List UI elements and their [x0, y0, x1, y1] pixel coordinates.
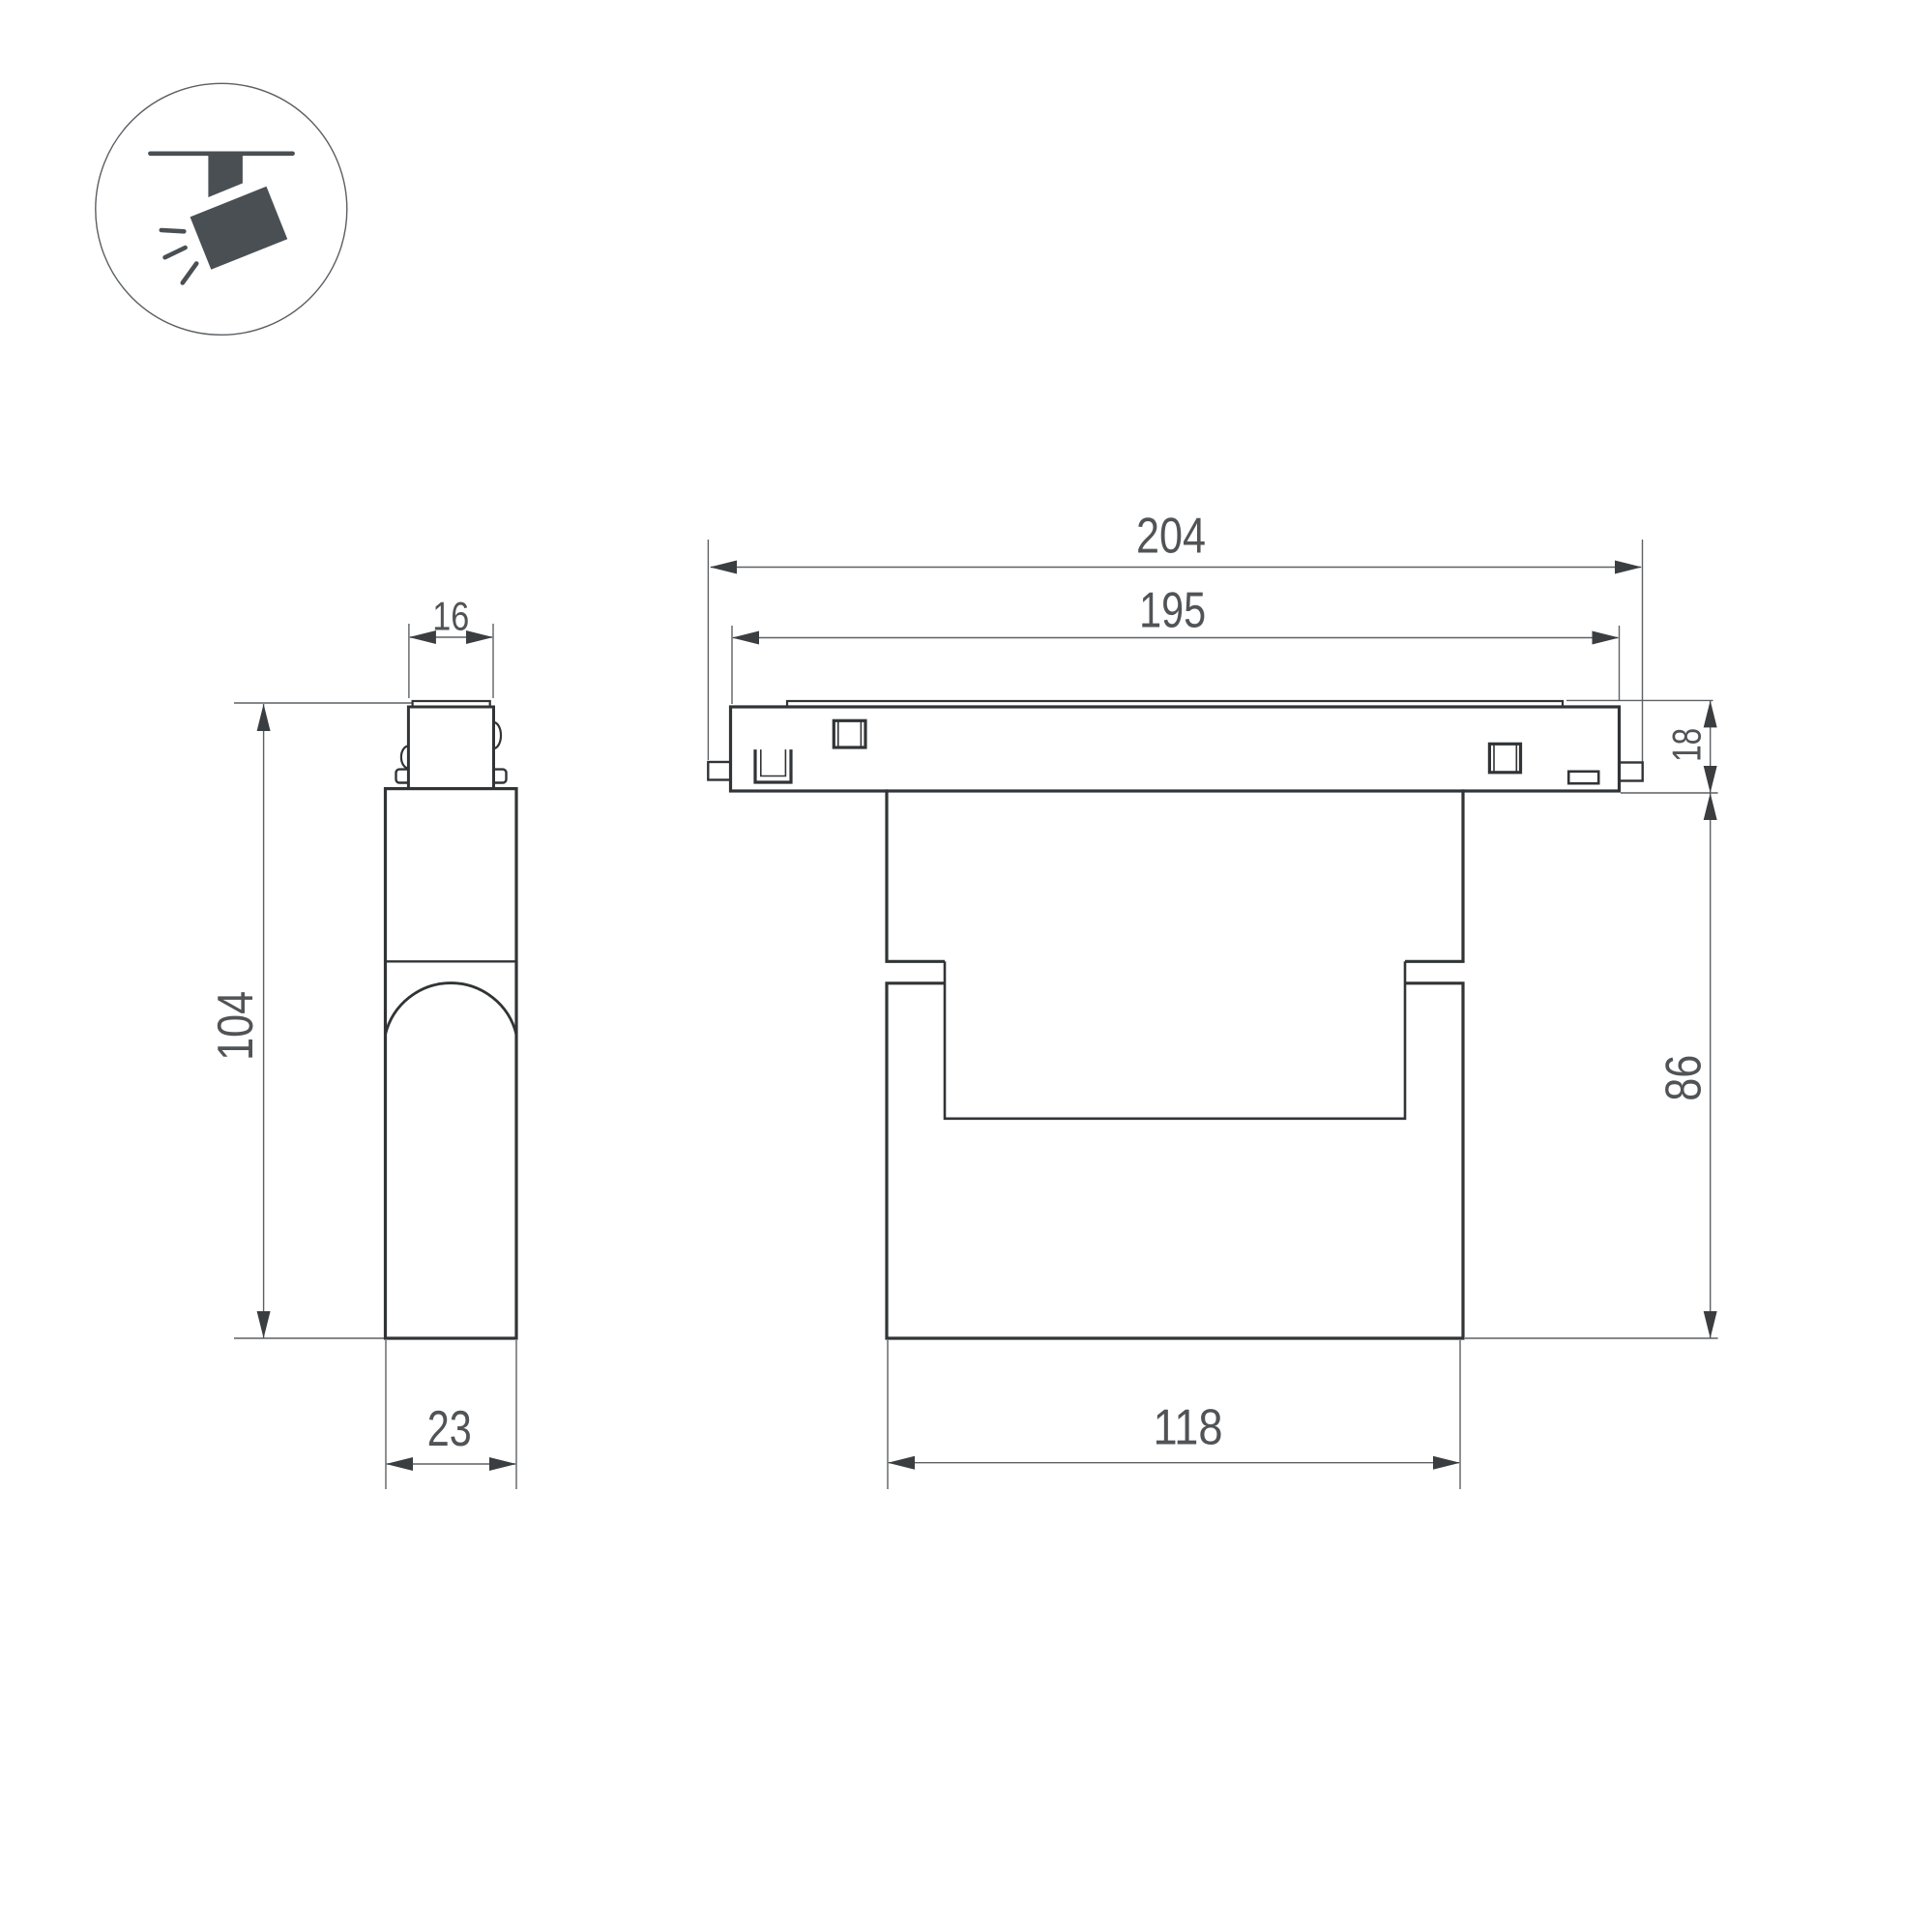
svg-text:18: 18: [1663, 728, 1709, 762]
svg-text:16: 16: [432, 593, 469, 638]
svg-text:86: 86: [1655, 1055, 1712, 1101]
svg-text:204: 204: [1136, 509, 1206, 565]
svg-text:195: 195: [1139, 583, 1206, 639]
svg-text:23: 23: [427, 1401, 472, 1457]
svg-text:104: 104: [208, 991, 264, 1061]
svg-text:118: 118: [1154, 1400, 1223, 1456]
